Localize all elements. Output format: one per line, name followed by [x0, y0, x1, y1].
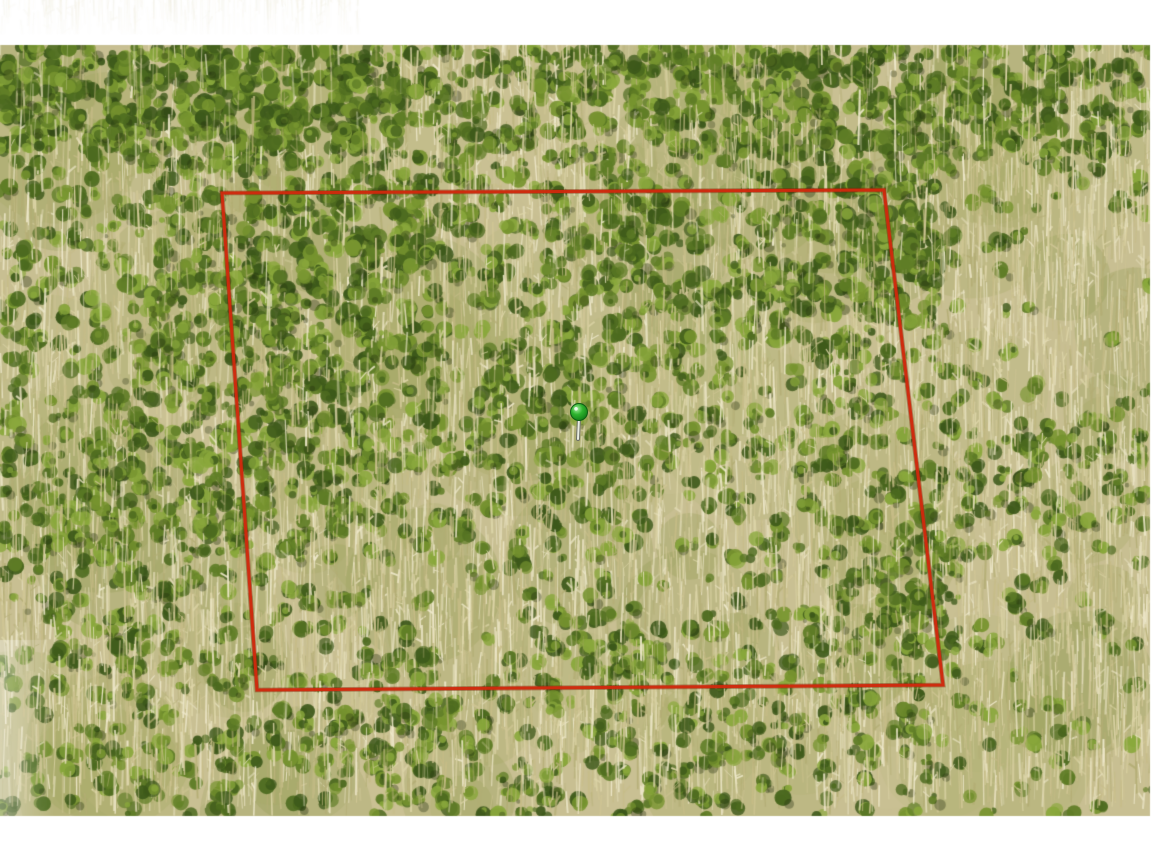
pin-stem [578, 418, 579, 439]
pin-head [571, 404, 588, 421]
aerial-listing-photo [0, 0, 1152, 864]
forest-aerial-photo [0, 0, 1152, 864]
pin-specular-highlight [574, 407, 578, 411]
